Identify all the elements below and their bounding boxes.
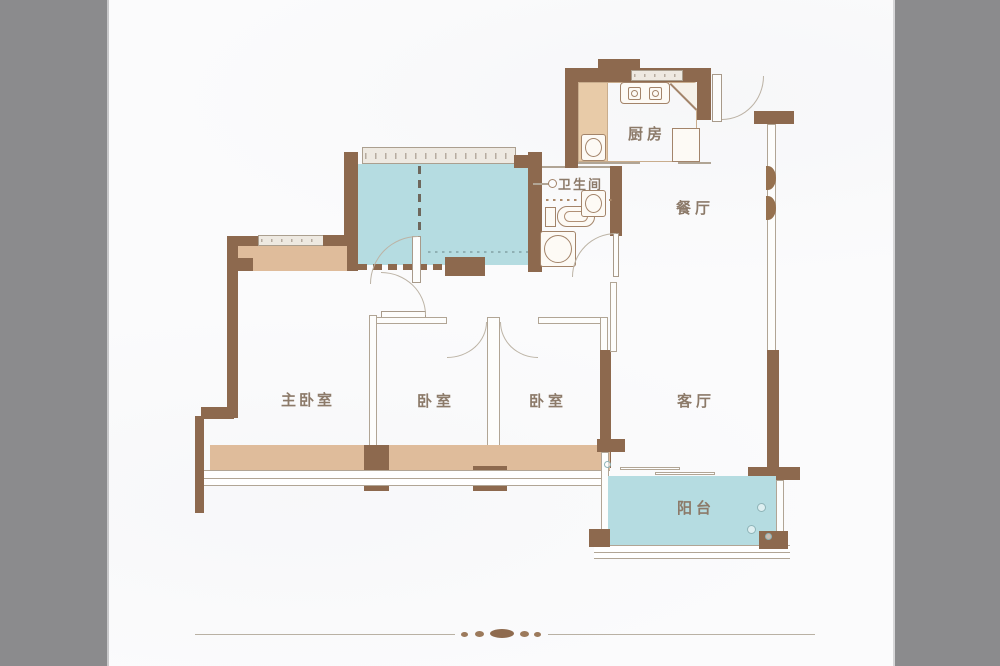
drain-icon bbox=[604, 461, 611, 468]
wall-outer-left bbox=[227, 236, 238, 418]
kitchen-sink-icon bbox=[581, 134, 606, 161]
wall-balcony-top-left bbox=[597, 439, 625, 452]
divider-dot bbox=[475, 631, 484, 637]
wash-basin-icon bbox=[540, 231, 576, 267]
wall-kitchen-bottom-b bbox=[678, 162, 711, 164]
wall-hallway-top-block bbox=[445, 257, 485, 276]
wall-bedroom2-top bbox=[538, 317, 605, 324]
divider-line-left bbox=[195, 634, 455, 635]
stove-burner-icon bbox=[649, 87, 662, 100]
room-label-bedroom-left: 卧室 bbox=[417, 394, 455, 409]
wall-kitchen-right bbox=[697, 68, 711, 120]
wall-post-living-right bbox=[767, 350, 779, 468]
divider-center-ellipse bbox=[490, 629, 514, 638]
dotted-line-teal-room bbox=[428, 251, 532, 253]
window-kitchen-top bbox=[631, 70, 683, 81]
room-label-dining: 餐厅 bbox=[676, 201, 714, 216]
bathroom-door-arc bbox=[572, 233, 616, 277]
left-gray-panel bbox=[0, 0, 109, 666]
window-top-teal-room bbox=[362, 147, 516, 164]
window-left-bay bbox=[258, 235, 324, 246]
wall-kitchen-bottom-a bbox=[578, 162, 640, 164]
drain-icon bbox=[757, 503, 766, 512]
wall-between-bedrooms bbox=[487, 317, 500, 448]
drain-icon bbox=[747, 525, 756, 534]
divider-dot bbox=[534, 632, 541, 637]
room-label-bathroom: 卫生间 bbox=[558, 178, 603, 191]
room-label-master-bedroom: 主卧室 bbox=[281, 393, 335, 408]
right-gray-panel bbox=[893, 0, 1000, 666]
room-label-bedroom-right: 卧室 bbox=[529, 394, 567, 409]
wall-left-step bbox=[201, 407, 234, 419]
bedroom2-door-arc bbox=[500, 322, 538, 358]
drain-icon bbox=[765, 533, 772, 540]
divider-dot bbox=[461, 632, 468, 637]
toilet-icon bbox=[545, 207, 556, 227]
wall-entry-tee bbox=[754, 111, 794, 124]
wall-bathroom-right bbox=[610, 166, 622, 236]
entry-door-leaf bbox=[712, 74, 722, 122]
sliding-door-panel bbox=[620, 467, 680, 470]
wall-kitchen-left bbox=[565, 68, 578, 168]
wall-bedroom1-top bbox=[376, 317, 447, 324]
divider-line-right bbox=[548, 634, 815, 635]
kitchen-sink-icon bbox=[581, 190, 606, 217]
room-label-kitchen: 厨房 bbox=[628, 127, 666, 142]
wall-master-right bbox=[369, 315, 377, 448]
sliding-door-panel bbox=[655, 472, 715, 475]
room-label-balcony: 阳台 bbox=[677, 501, 715, 516]
stove-icon bbox=[620, 82, 670, 104]
wall-balcony-bottom-left bbox=[589, 529, 610, 547]
window-lines-bottom bbox=[204, 470, 610, 486]
stove-burner-icon bbox=[628, 87, 641, 100]
bay-window-band-bottom bbox=[210, 445, 610, 470]
fridge-icon bbox=[672, 128, 700, 162]
wall-hall-right-thin bbox=[610, 282, 617, 352]
bedroom1-door-arc bbox=[447, 322, 487, 358]
shower-head-icon bbox=[548, 179, 557, 188]
divider-dot bbox=[520, 631, 529, 637]
wall-balcony-bottom-right bbox=[759, 531, 788, 549]
room-label-living: 客厅 bbox=[677, 394, 715, 409]
wall-right-thin bbox=[767, 124, 776, 352]
wall-left-lower bbox=[195, 416, 204, 513]
shower-head-icon bbox=[533, 183, 549, 185]
floorplan-page: 厨房 卫生间 餐厅 主卧室 卧室 卧室 客厅 阳台 bbox=[0, 0, 1000, 666]
